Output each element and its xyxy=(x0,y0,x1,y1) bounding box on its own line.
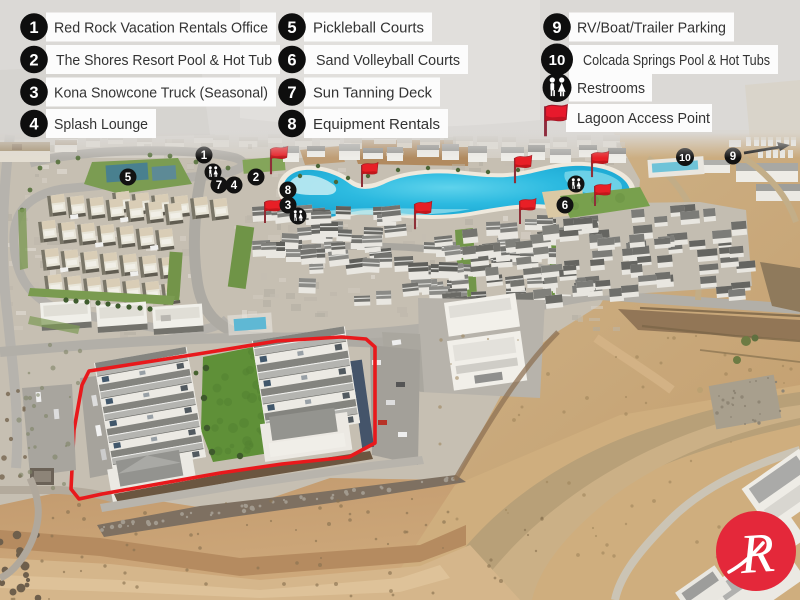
svg-text:Restrooms: Restrooms xyxy=(577,80,645,97)
svg-text:9: 9 xyxy=(552,19,561,37)
svg-text:Lagoon Access Point: Lagoon Access Point xyxy=(577,110,711,127)
svg-text:Kona Snowcone Truck (Seasonal): Kona Snowcone Truck (Seasonal) xyxy=(54,84,268,101)
svg-text:Pickleball Courts: Pickleball Courts xyxy=(313,19,424,36)
svg-text:2: 2 xyxy=(253,172,259,184)
svg-text:7: 7 xyxy=(216,180,222,192)
svg-text:5: 5 xyxy=(125,172,132,184)
svg-text:3: 3 xyxy=(29,84,38,102)
svg-text:Red Rock Vacation Rentals Offi: Red Rock Vacation Rentals Office xyxy=(54,19,268,36)
svg-text:Colcada Springs Pool & Hot Tub: Colcada Springs Pool & Hot Tubs xyxy=(583,52,770,69)
svg-text:Splash Lounge: Splash Lounge xyxy=(54,116,148,133)
svg-text:6: 6 xyxy=(562,200,568,212)
svg-text:4: 4 xyxy=(231,180,238,192)
svg-text:1: 1 xyxy=(29,19,38,37)
svg-text:6: 6 xyxy=(287,51,296,69)
svg-text:The Shores Resort Pool & Hot T: The Shores Resort Pool & Hot Tub xyxy=(56,52,272,69)
svg-text:7: 7 xyxy=(287,84,296,102)
svg-text:4: 4 xyxy=(29,115,39,133)
svg-text:Equipment Rentals: Equipment Rentals xyxy=(313,116,440,133)
svg-text:2: 2 xyxy=(29,51,38,69)
svg-text:Sun Tanning Deck: Sun Tanning Deck xyxy=(313,84,432,101)
svg-text:R: R xyxy=(737,522,776,586)
svg-text:8: 8 xyxy=(287,115,296,133)
svg-text:3: 3 xyxy=(285,200,291,212)
svg-text:8: 8 xyxy=(285,185,292,197)
svg-text:RV/Boat/Trailer Parking: RV/Boat/Trailer Parking xyxy=(577,19,726,36)
svg-text:10: 10 xyxy=(549,52,566,69)
svg-text:5: 5 xyxy=(287,19,296,37)
svg-text:Sand Volleyball Courts: Sand Volleyball Courts xyxy=(316,52,460,69)
